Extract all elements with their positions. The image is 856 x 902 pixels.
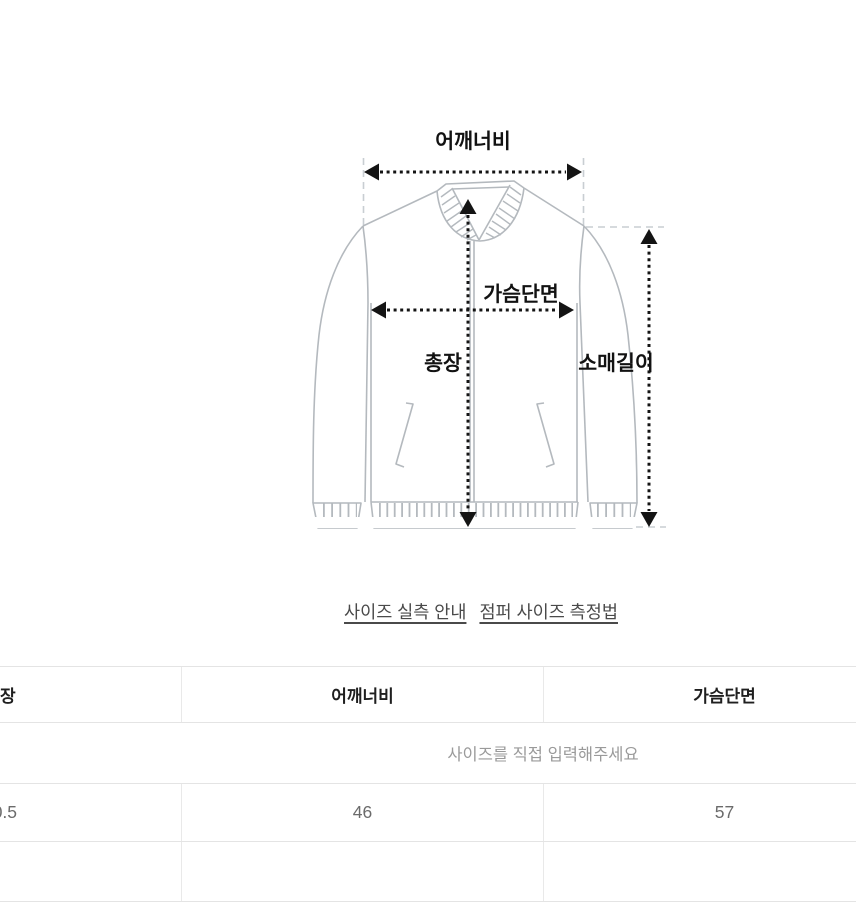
- size-value-total-length: 70.5: [0, 784, 181, 841]
- right-pocket-mark: [537, 403, 554, 467]
- left-pocket-mark: [396, 403, 413, 467]
- measure-arrows: [380, 172, 649, 511]
- size-table-header-row: 총장 어깨너비 가슴단면: [0, 666, 856, 723]
- label-total-length: 총장: [424, 352, 462, 375]
- label-chest-width: 가슴단면: [483, 283, 558, 306]
- jacket-diagram-svg: 어깨너비 가슴단면 총장 소매길이: [0, 0, 856, 560]
- size-value-chest-width: 57: [543, 784, 856, 841]
- collar-hatching: [441, 187, 521, 240]
- size-table: 총장 어깨너비 가슴단면 사이즈를 직접 입력해주세요 70.5 46 57: [0, 666, 856, 902]
- size-measure-guide-link[interactable]: 사이즈 실측 안내: [344, 600, 466, 625]
- label-shoulder-width: 어깨너비: [435, 130, 510, 153]
- col-header-shoulder-width: 어깨너비: [181, 667, 543, 722]
- label-sleeve-length: 소매길이: [578, 352, 653, 375]
- jacket-measurement-diagram: 어깨너비 가슴단면 총장 소매길이: [0, 0, 856, 560]
- size-input-prompt-row[interactable]: 사이즈를 직접 입력해주세요: [0, 723, 856, 784]
- empty-cell: [0, 842, 181, 901]
- col-header-chest-width: 가슴단면: [543, 667, 856, 722]
- size-value-shoulder-width: 46: [181, 784, 543, 841]
- empty-cell: [181, 842, 543, 901]
- empty-cell: [543, 842, 856, 901]
- jumper-measure-method-link[interactable]: 점퍼 사이즈 측정법: [479, 600, 618, 625]
- size-input-prompt[interactable]: 사이즈를 직접 입력해주세요: [0, 723, 856, 783]
- ribbing-mask: [310, 517, 580, 528]
- ribbing-mask-right: [588, 517, 636, 528]
- size-guide-links: 사이즈 실측 안내 점퍼 사이즈 측정법: [53, 600, 856, 625]
- size-row-2-partial[interactable]: [0, 842, 856, 902]
- col-header-total-length: 총장: [0, 667, 181, 722]
- arrowheads: [364, 164, 658, 528]
- guide-lines: [364, 158, 667, 527]
- size-row-1[interactable]: 70.5 46 57: [0, 784, 856, 842]
